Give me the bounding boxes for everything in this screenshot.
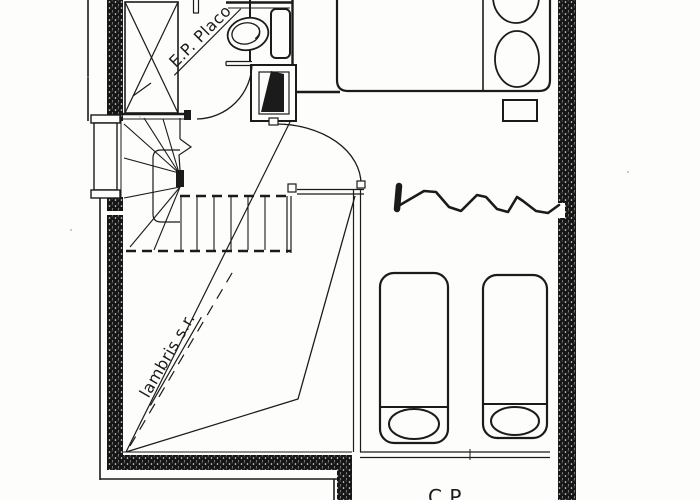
- toilet-tank: [271, 9, 290, 58]
- pillow: [495, 31, 539, 87]
- floor-plan-drawing: lambris s.r. E.P. Placo: [0, 0, 700, 500]
- zigzag-start-blob: [397, 186, 399, 209]
- speck: [70, 229, 72, 231]
- floor-plan-page: lambris s.r. E.P. Placo: [0, 0, 700, 500]
- wall-post: [184, 110, 191, 120]
- single-bed-icon-right: [483, 275, 547, 438]
- left-wall-lower: [107, 197, 123, 456]
- bottom-step-wall: [337, 469, 352, 500]
- speck: [627, 171, 629, 173]
- speck: [139, 116, 141, 118]
- single-bed-icon-left: [380, 273, 448, 443]
- left-wall-upper: [107, 0, 123, 121]
- window-frame: [94, 123, 117, 190]
- speck: [87, 76, 89, 78]
- window: [91, 111, 121, 199]
- door-jamb-tick: [269, 118, 278, 125]
- bottom-wall: [107, 455, 352, 470]
- wall-jamb-tick: [288, 184, 296, 192]
- pillow: [389, 409, 439, 439]
- door-jamb-tick: [357, 181, 365, 188]
- pillow: [491, 407, 539, 435]
- window-cap: [91, 190, 120, 198]
- shower-tray-icon: [251, 65, 296, 121]
- cp-label-text: C.P: [428, 485, 462, 500]
- nightstand-icon: [503, 100, 537, 121]
- window-cap: [91, 115, 120, 123]
- wall-joint-gap: [105, 211, 125, 215]
- right-wall: [558, 0, 576, 500]
